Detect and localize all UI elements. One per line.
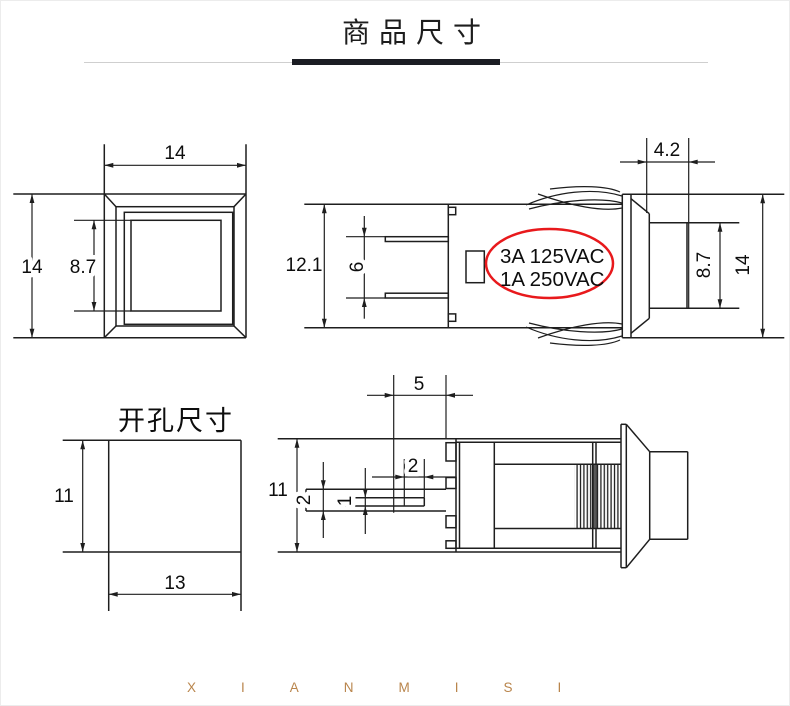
dim-front-height: 14 (21, 257, 43, 278)
top-view: 11 5 2 2 1 (268, 374, 688, 568)
dim-front-width: 14 (164, 143, 186, 164)
watermark: XIANMISI (187, 680, 606, 695)
dim-pin-width: 2 (294, 495, 315, 506)
dim-cap-height: 8.7 (694, 252, 715, 278)
technical-drawing: 14 14 8.7 (1, 1, 789, 705)
latch-box (466, 251, 484, 283)
product-dimension-sheet: 商品尺寸 (0, 0, 790, 706)
pin-upper (385, 237, 448, 242)
dim-cap-protrusion: 4.2 (654, 140, 680, 161)
dim-bezel-height: 14 (733, 254, 754, 276)
dim-top-body: 11 (268, 480, 288, 501)
dim-hole-to-face: 5 (414, 374, 425, 395)
spring-hatch (575, 465, 621, 528)
side-view: 3A 125VAC 1A 250VAC 12.1 6 4.2 8.7 14 (286, 138, 785, 345)
front-view: 14 14 8.7 (13, 143, 246, 338)
dim-hole-height: 11 (54, 486, 74, 507)
rating-line2: 1A 250VAC (500, 268, 605, 291)
dim-body-height: 12.1 (286, 255, 323, 276)
rating-line1: 3A 125VAC (500, 245, 605, 268)
hole-view-title: 开孔尺寸 (118, 406, 234, 436)
dim-hole-width: 13 (164, 573, 185, 594)
dim-pin-span: 6 (347, 262, 368, 273)
dim-pin-thickness: 1 (335, 496, 356, 507)
dim-front-button: 8.7 (70, 257, 96, 278)
hole-view: 开孔尺寸 11 13 (54, 406, 241, 611)
dim-slot-length: 2 (408, 456, 419, 477)
pin-lower (385, 293, 448, 298)
